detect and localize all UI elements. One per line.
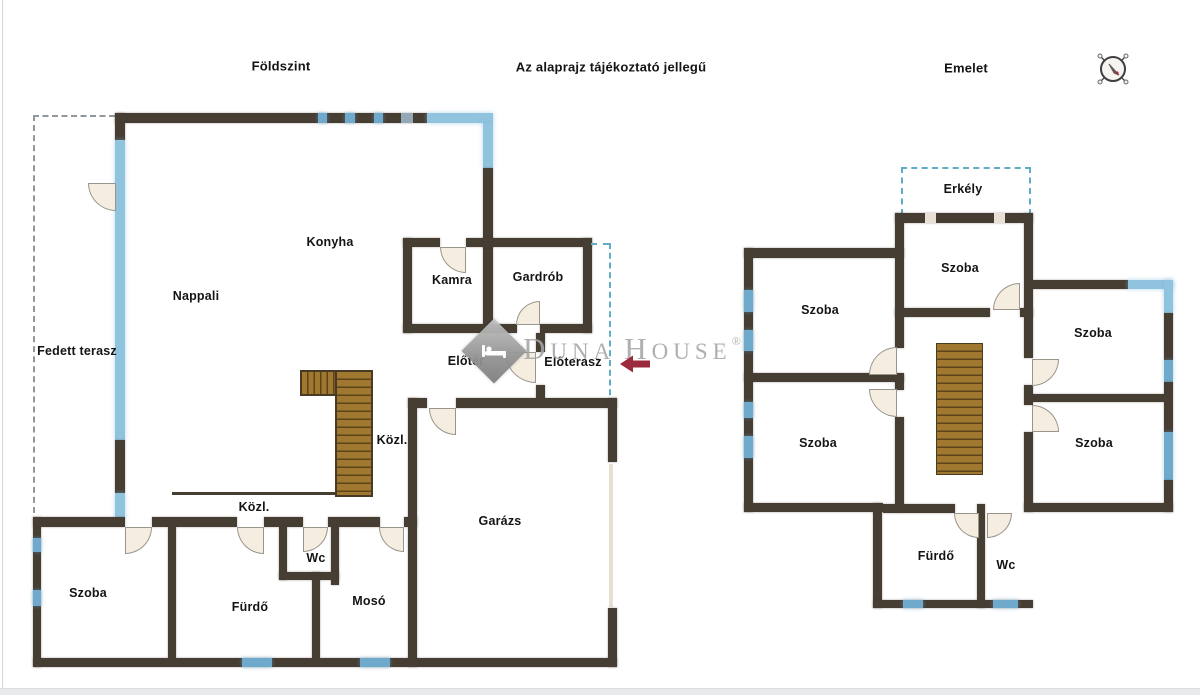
page-edge-strip <box>0 688 1200 695</box>
wall-segment <box>883 504 955 513</box>
wall-segment <box>895 308 990 317</box>
window-segment <box>115 140 125 440</box>
wall-segment <box>483 238 592 247</box>
window-segment <box>360 658 390 667</box>
door-arc <box>1032 405 1059 432</box>
window-segment <box>242 658 272 667</box>
door-arc <box>993 283 1020 310</box>
wall-segment <box>1024 432 1033 512</box>
room-label-konyha: Konyha <box>306 235 353 249</box>
page-edge-line <box>2 0 3 695</box>
watermark-letter: D <box>523 331 550 366</box>
door-arc <box>869 347 897 375</box>
room-label-szoba-right-bottom: Szoba <box>1075 436 1113 450</box>
window-segment <box>1164 432 1173 480</box>
wall-segment <box>408 398 417 667</box>
wall-segment <box>583 238 592 333</box>
door-arc <box>88 183 116 211</box>
wall-segment <box>404 517 417 527</box>
floor-plan-image: Földszint Az alaprajz tájékoztató jelleg… <box>0 0 1200 695</box>
floor-title-upper: Emelet <box>944 61 988 76</box>
wall-segment <box>608 398 617 462</box>
window-segment <box>744 290 753 312</box>
room-label-fedett-terasz: Fedett terasz <box>37 344 117 358</box>
window-segment <box>483 123 493 168</box>
window-segment <box>401 113 413 123</box>
door-arc <box>237 527 264 554</box>
wall-segment <box>328 517 380 527</box>
window-segment <box>1164 360 1173 382</box>
window-segment <box>115 493 125 519</box>
watermark-letters: OUSE <box>652 339 732 364</box>
wall-segment <box>895 213 1033 223</box>
floor-title-ground: Földszint <box>252 59 311 74</box>
wall-segment <box>152 517 237 527</box>
room-label-garazs: Garázs <box>479 514 522 528</box>
wall-segment <box>483 168 493 333</box>
wall-segment <box>115 113 125 140</box>
hallway-line <box>172 492 335 495</box>
garage-door-opening <box>609 464 613 607</box>
wall-segment <box>264 517 303 527</box>
room-label-erkely: Erkély <box>944 182 983 196</box>
stairs-upper <box>936 343 983 475</box>
wall-segment <box>744 503 883 512</box>
wall-segment <box>312 572 320 658</box>
door-arc <box>987 513 1012 538</box>
door-arc <box>1032 359 1059 386</box>
window-segment <box>345 113 355 123</box>
window-segment <box>744 436 753 458</box>
front-terrace-boundary-top <box>591 243 609 245</box>
window-segment <box>744 402 753 418</box>
covered-terrace-boundary-left <box>33 115 35 523</box>
balcony-door-opening <box>925 213 936 223</box>
room-label-szoba-left-bottom: Szoba <box>799 436 837 450</box>
door-arc <box>379 527 404 552</box>
room-label-gardrob: Gardrób <box>513 270 564 284</box>
wall-segment <box>33 517 125 527</box>
wall-segment <box>873 503 882 608</box>
door-arc <box>429 408 456 435</box>
wall-segment <box>895 417 904 512</box>
window-segment <box>33 590 41 606</box>
wall-segment <box>1024 213 1033 290</box>
window-segment <box>374 113 383 123</box>
wall-segment <box>1164 382 1173 432</box>
room-label-szoba-middle: Szoba <box>941 261 979 275</box>
room-label-wc-upper: Wc <box>996 558 1015 572</box>
room-label-moso: Mosó <box>352 594 385 608</box>
stairs-ground-main-flight <box>335 370 373 497</box>
wall-segment <box>33 658 617 667</box>
wall-segment <box>895 375 904 390</box>
door-arc <box>303 527 328 552</box>
wall-segment <box>1024 503 1173 512</box>
balcony-door-opening <box>994 213 1005 223</box>
front-terrace-boundary-right <box>609 243 611 405</box>
door-arc <box>516 301 540 325</box>
window-segment <box>33 538 41 552</box>
stairs-ground-upper-flight <box>300 370 338 396</box>
window-segment <box>993 600 1018 608</box>
wall-segment <box>279 572 339 580</box>
door-arc <box>869 389 897 417</box>
room-label-kozl-lower: Közl. <box>239 500 270 514</box>
registered-mark: ® <box>732 334 741 348</box>
bed-icon <box>481 342 507 360</box>
wall-segment <box>1024 385 1033 405</box>
room-label-furdo-upper: Fürdő <box>918 549 954 563</box>
wall-segment <box>1033 280 1128 289</box>
wall-segment <box>403 238 412 333</box>
room-label-kozl-upper: Közl. <box>377 433 408 447</box>
window-segment <box>903 600 923 608</box>
room-label-kamra: Kamra <box>432 273 472 287</box>
room-label-szoba: Szoba <box>69 586 107 600</box>
wall-segment <box>744 248 904 258</box>
room-label-nappali: Nappali <box>173 289 220 303</box>
door-arc <box>440 247 466 273</box>
window-segment <box>744 330 753 351</box>
room-label-szoba-left-top: Szoba <box>801 303 839 317</box>
wall-segment <box>895 213 904 348</box>
room-label-furdo: Fürdő <box>232 600 268 614</box>
direction-arrow-icon <box>620 354 652 374</box>
wall-segment <box>168 527 176 658</box>
door-arc <box>125 527 152 554</box>
window-segment <box>427 113 493 123</box>
door-arc <box>954 513 979 538</box>
compass-icon <box>1092 48 1134 90</box>
wall-segment <box>115 440 125 493</box>
plan-disclaimer: Az alaprajz tájékoztató jellegű <box>516 60 706 75</box>
window-segment <box>318 113 327 123</box>
room-label-wc: Wc <box>306 551 325 565</box>
room-label-szoba-right-top: Szoba <box>1074 326 1112 340</box>
wall-segment <box>1033 394 1168 402</box>
wall-segment <box>1164 313 1173 360</box>
covered-terrace-boundary-top <box>33 115 115 117</box>
watermark-letters: UNA <box>550 339 615 364</box>
wall-segment <box>1024 290 1033 358</box>
window-segment <box>1164 280 1173 313</box>
wall-segment <box>456 398 617 408</box>
